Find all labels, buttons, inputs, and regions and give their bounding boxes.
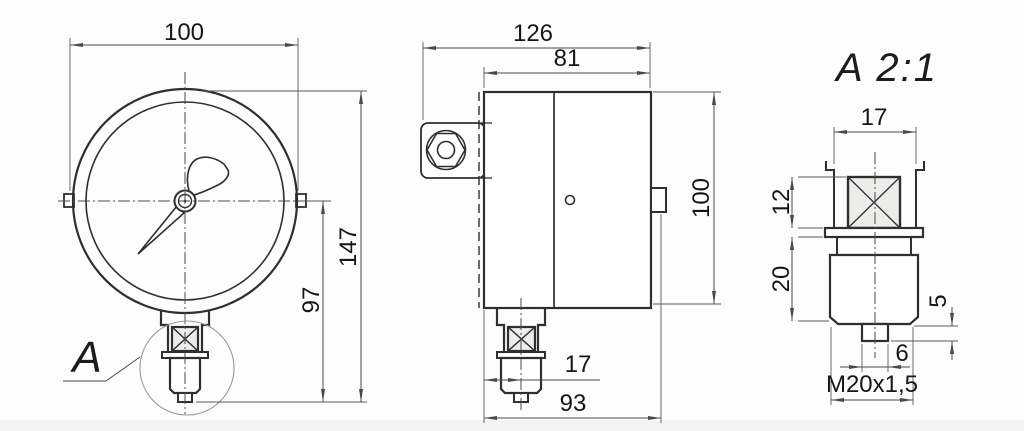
dim-front-lower-height: 97: [298, 287, 325, 314]
dim-detail-thread: M20x1,5: [826, 371, 918, 398]
fitting-neck-right: [538, 308, 545, 352]
dim-detail-square-height: 12: [768, 189, 795, 216]
dim-side-total-depth: 93: [560, 390, 587, 417]
front-view: A 100 147 97: [58, 19, 367, 415]
detail-letter-label: A: [69, 333, 101, 382]
gauge-needle-counterweight: [187, 157, 228, 196]
fitting-neck-right: [202, 310, 209, 352]
rear-tab: [651, 188, 666, 212]
dim-detail-holder-width: 17: [861, 104, 888, 131]
holder-wall-right: [916, 161, 924, 228]
dim-front-total-height: 147: [335, 227, 362, 267]
detail-view: A 2:1 17 12 20 5: [768, 46, 958, 405]
detail-view-title: A 2:1: [834, 46, 938, 90]
bottom-strip: [0, 420, 1024, 431]
holder-wall-left: [826, 161, 834, 228]
dim-detail-tip-width: 6: [895, 340, 908, 367]
gauge-needle-pointer: [138, 206, 184, 254]
dim-side-body-height: 100: [688, 178, 715, 218]
dim-side-axis-offset: 17: [565, 351, 592, 378]
fitting-flange: [825, 228, 923, 237]
technical-drawing: A 100 147 97: [0, 0, 1024, 431]
bracket-hole: [438, 142, 455, 159]
dim-detail-tip-height: 5: [925, 294, 952, 307]
case-hole: [566, 196, 575, 205]
side-view: 126 81 100 17 93: [421, 20, 721, 423]
dim-front-width: 100: [164, 19, 204, 46]
dim-side-total-width: 126: [513, 20, 553, 47]
drawing-canvas: A 100 147 97: [0, 0, 1024, 431]
fitting-neck-left: [497, 308, 504, 352]
fitting-neck-left: [161, 310, 168, 352]
dim-side-body-width: 81: [554, 45, 581, 72]
dim-detail-boss-height: 20: [768, 266, 795, 293]
fitting-boss: [830, 255, 918, 324]
